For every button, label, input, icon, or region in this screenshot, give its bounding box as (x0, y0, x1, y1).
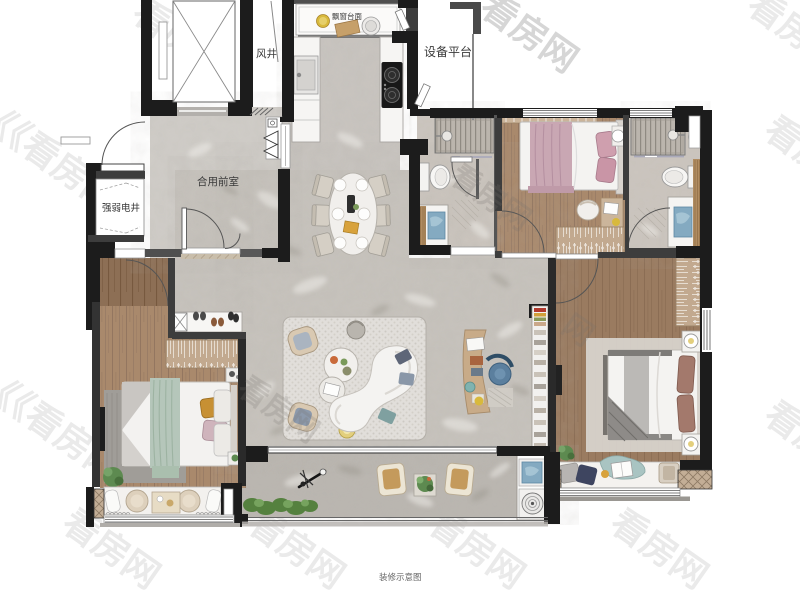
svg-text:合用前室: 合用前室 (197, 175, 239, 188)
svg-text:风井: 风井 (256, 47, 277, 60)
svg-text:看房网: 看房网 (757, 108, 800, 204)
svg-text:飘窗台面: 飘窗台面 (332, 11, 362, 21)
svg-text:看房网: 看房网 (740, 0, 800, 79)
svg-text:看房网: 看房网 (603, 501, 715, 597)
svg-text:设备平台: 设备平台 (424, 44, 472, 59)
svg-text:装修示意图: 装修示意图 (379, 572, 422, 582)
svg-text:看房: 看房 (757, 393, 800, 468)
svg-text:看房网: 看房网 (473, 0, 585, 81)
svg-text:强弱电井: 强弱电井 (102, 202, 140, 214)
